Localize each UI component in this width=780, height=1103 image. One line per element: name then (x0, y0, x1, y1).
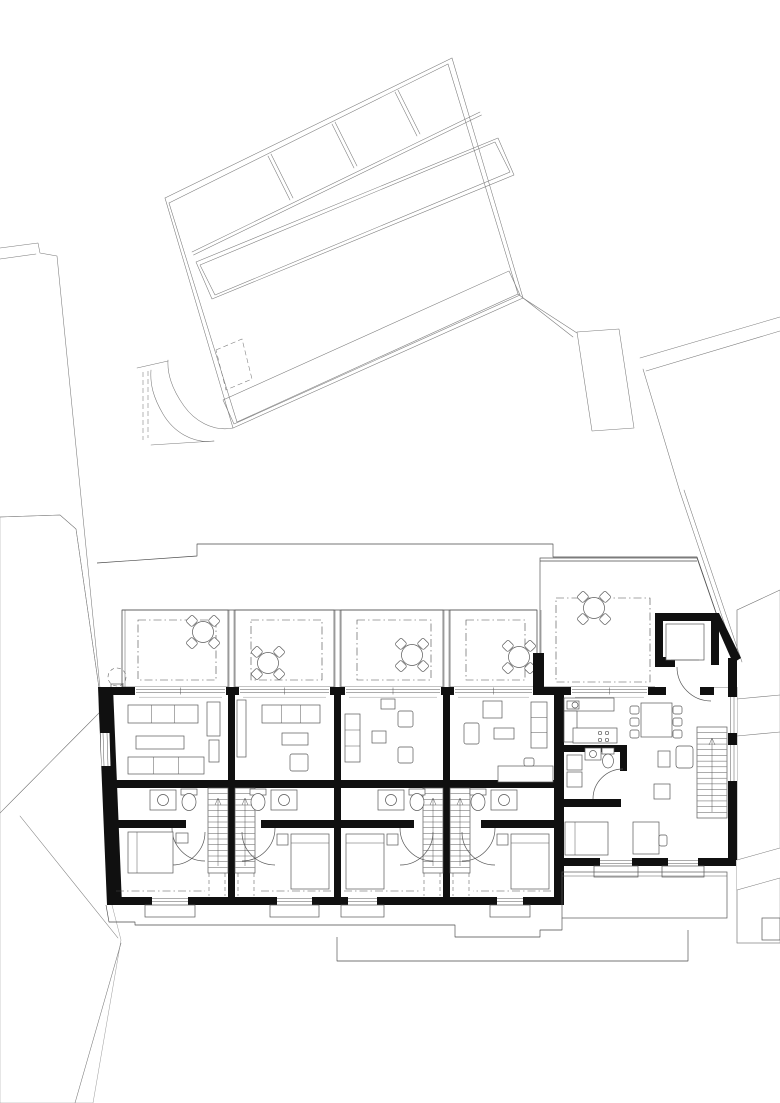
adjacent-roof-right (737, 590, 780, 943)
roof-terraces (122, 558, 741, 691)
terrace-table-with-chairs (175, 604, 232, 661)
corner-unit (560, 613, 741, 918)
unit-4 (446, 701, 558, 917)
window-openings (135, 687, 700, 697)
site-plan-buildings (0, 58, 780, 688)
row-house-units (101, 699, 559, 917)
terrace-table-with-chairs (240, 635, 297, 692)
terrace-table-with-chairs (384, 627, 441, 684)
unit-2 (231, 700, 338, 917)
architectural-floor-plan-drawing (0, 0, 780, 1103)
floor-plan-page (0, 0, 780, 1103)
unit-3 (337, 699, 447, 917)
adjacent-roof-left (0, 515, 121, 1103)
terrace-table-with-chairs (566, 580, 623, 637)
